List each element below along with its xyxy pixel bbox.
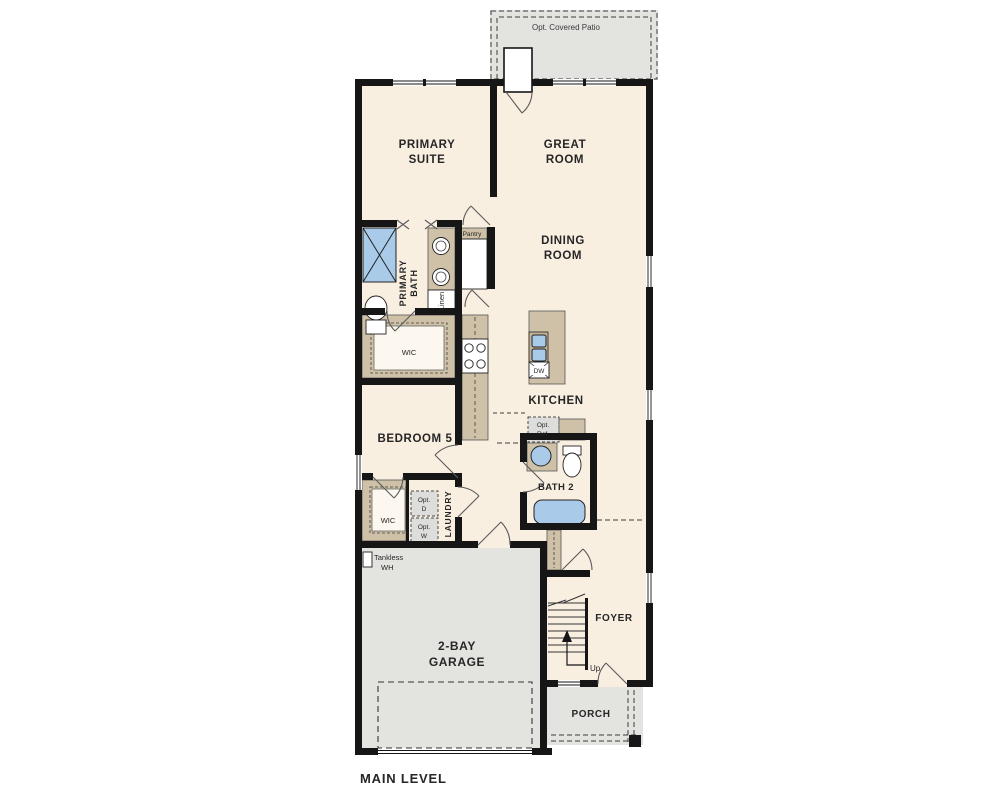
wall [362, 220, 397, 227]
bath2-sink [531, 446, 551, 466]
porch-label: PORCH [571, 709, 610, 720]
wall [540, 548, 547, 755]
bedroom5-label: BEDROOM 5 [377, 433, 452, 445]
wall [545, 570, 590, 577]
wall [403, 473, 462, 480]
window [586, 79, 616, 86]
window [558, 680, 580, 687]
wall [585, 598, 588, 670]
kitchen-label: KITCHEN [528, 395, 583, 407]
wall [406, 480, 409, 541]
wall [527, 523, 597, 530]
wall [590, 440, 597, 530]
vanity-sink [433, 269, 450, 286]
burner [465, 360, 473, 368]
porch-column [629, 735, 641, 747]
wall [355, 541, 478, 548]
bath2-label: BATH 2 [538, 482, 574, 493]
plan-title: MAIN LEVEL [360, 771, 447, 786]
wall [520, 492, 527, 530]
laundry-label: LAUNDRY [443, 491, 453, 538]
wall [455, 315, 462, 445]
wall [455, 220, 462, 315]
window [355, 455, 362, 490]
wall [627, 680, 653, 687]
tankless-water-heater [363, 552, 372, 567]
wall [362, 378, 462, 385]
patio-label: Opt. Covered Patio [532, 23, 601, 32]
wall [545, 680, 558, 687]
primary-toilet-tank [366, 320, 386, 334]
window [646, 573, 653, 603]
wall [490, 86, 497, 197]
window [646, 390, 653, 420]
sink-basin [532, 335, 546, 347]
up-label: Up [590, 664, 601, 673]
wall [355, 748, 378, 755]
burner [477, 344, 485, 352]
wall [532, 748, 552, 755]
wic-bedroom5-label: WIC [381, 516, 396, 525]
bath2-toilet-bowl [563, 453, 581, 477]
pantry-interior [458, 239, 487, 289]
wall [520, 433, 597, 440]
floor-plan-drawing: Opt. Covered Patio PRIMARYSUITE GREATROO… [0, 0, 1000, 800]
pantry-label: Pantry [463, 231, 483, 238]
floor-plan-page: Opt. Covered Patio PRIMARYSUITE GREATROO… [0, 0, 1000, 800]
wall [487, 227, 495, 289]
wall [362, 473, 373, 480]
wall [362, 308, 385, 315]
wall [437, 220, 455, 227]
sink-basin [532, 349, 546, 361]
patio-door-landing [504, 48, 532, 92]
garage-door-opening [378, 748, 532, 755]
window [426, 79, 456, 86]
vanity-sink [433, 238, 450, 255]
dishwasher-label: DW [534, 368, 546, 375]
wall [510, 541, 547, 548]
burner [477, 360, 485, 368]
foyer-label: FOYER [595, 613, 633, 624]
window [393, 79, 423, 86]
window [646, 256, 653, 287]
bath2-tub [534, 500, 585, 524]
burner [465, 344, 473, 352]
linen-label: Linen [437, 292, 446, 310]
range [462, 339, 488, 373]
wall [580, 680, 598, 687]
wall [520, 440, 527, 462]
wall [355, 86, 362, 755]
wic-primary-label: WIC [402, 348, 417, 357]
window [553, 79, 583, 86]
